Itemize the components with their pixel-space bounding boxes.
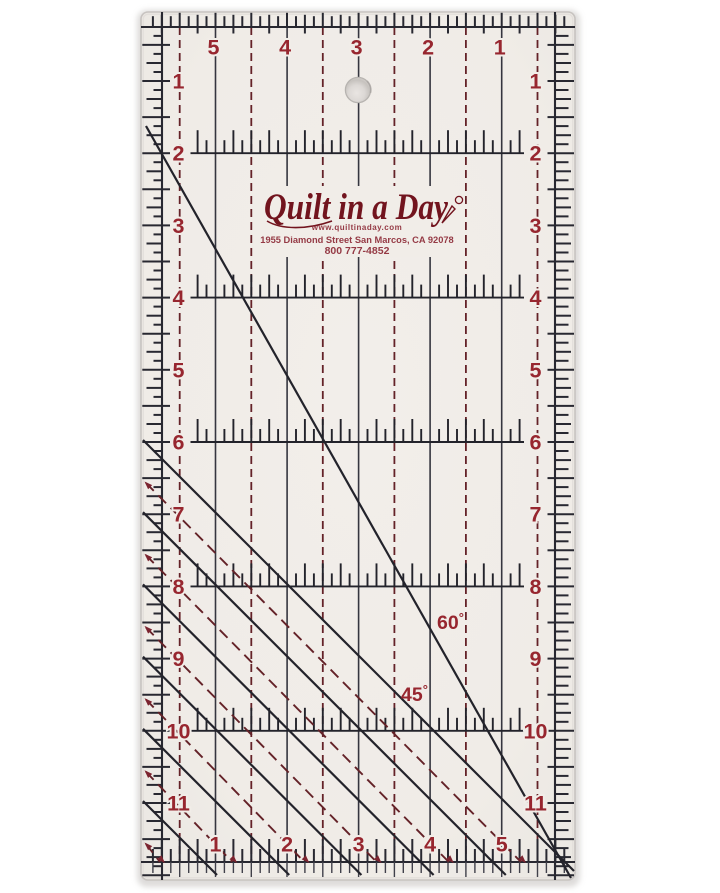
svg-text:4: 4 xyxy=(530,286,542,310)
svg-text:9: 9 xyxy=(173,647,185,671)
svg-text:2: 2 xyxy=(281,833,293,857)
svg-text:3: 3 xyxy=(351,36,363,60)
svg-text:1955 Diamond Street San Marcos: 1955 Diamond Street San Marcos, CA 92078 xyxy=(260,235,453,245)
svg-text:7: 7 xyxy=(530,503,542,527)
svg-text:10: 10 xyxy=(167,719,191,743)
svg-text:10: 10 xyxy=(524,719,548,743)
svg-text:8: 8 xyxy=(530,575,542,599)
svg-text:11: 11 xyxy=(524,792,547,816)
svg-text:6: 6 xyxy=(173,431,185,455)
svg-text:5: 5 xyxy=(496,833,508,857)
svg-text:3: 3 xyxy=(353,833,365,857)
svg-text:5: 5 xyxy=(173,358,185,382)
svg-text:4: 4 xyxy=(173,286,185,310)
svg-text:6: 6 xyxy=(530,431,542,455)
svg-text:3: 3 xyxy=(530,214,542,238)
svg-text:11: 11 xyxy=(167,792,190,816)
svg-text:3: 3 xyxy=(173,214,185,238)
svg-text:Quilt in a Day: Quilt in a Day xyxy=(264,186,449,227)
svg-text:9: 9 xyxy=(530,647,542,671)
svg-text:8: 8 xyxy=(173,575,185,599)
svg-text:1: 1 xyxy=(530,70,542,94)
svg-text:2: 2 xyxy=(422,36,434,60)
svg-text:1: 1 xyxy=(173,70,185,94)
svg-text:5: 5 xyxy=(530,358,542,382)
svg-text:4: 4 xyxy=(424,833,436,857)
svg-text:1: 1 xyxy=(210,833,222,857)
svg-text:4: 4 xyxy=(279,36,291,60)
svg-text:1: 1 xyxy=(494,36,506,60)
svg-text:800 777-4852: 800 777-4852 xyxy=(325,245,390,257)
svg-text:5: 5 xyxy=(208,36,220,60)
svg-text:2: 2 xyxy=(173,142,185,166)
svg-text:2: 2 xyxy=(530,142,542,166)
svg-text:www.quiltinaday.com: www.quiltinaday.com xyxy=(311,223,402,232)
svg-text:7: 7 xyxy=(173,503,185,527)
